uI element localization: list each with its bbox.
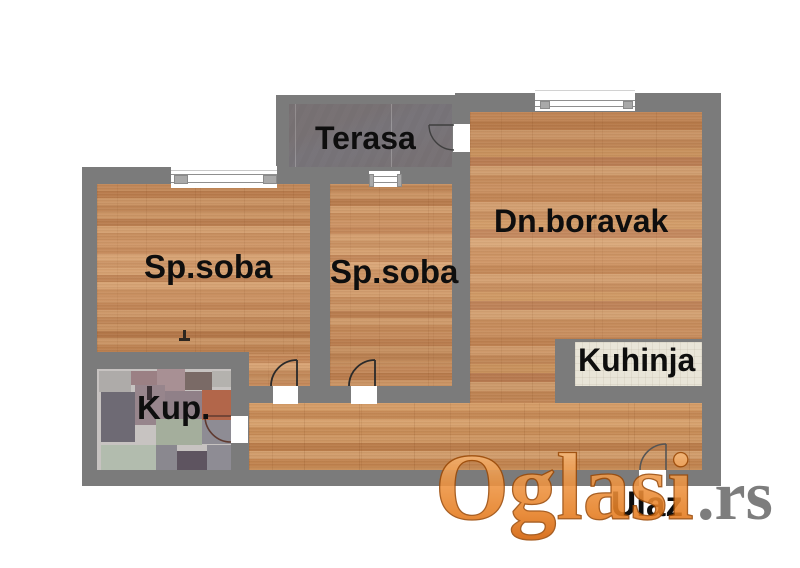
svg-text:.rs: .rs [697,458,773,535]
svg-text:Oglasi: Oglasi [435,434,694,540]
